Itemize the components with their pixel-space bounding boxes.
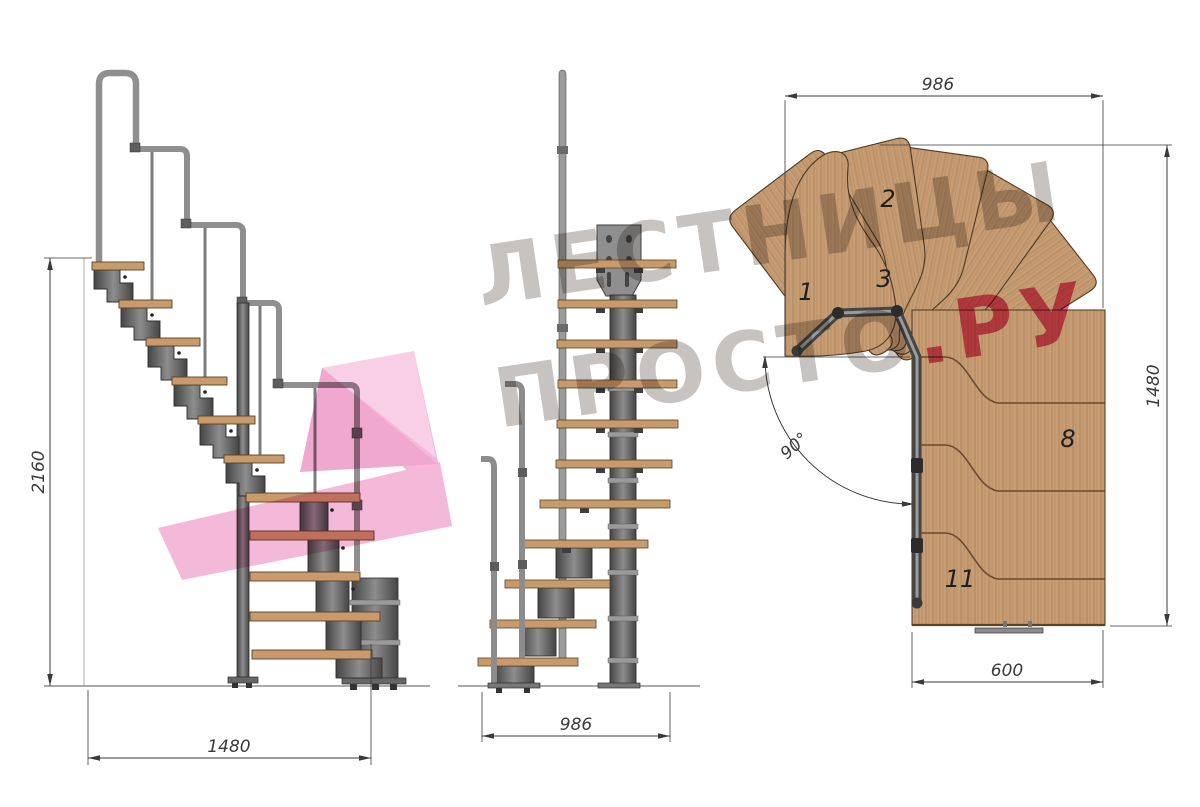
anchor-bolt [390,684,397,690]
dim-plan-angle [762,355,914,507]
dim-label-plan-bottom: 600 [991,661,1023,681]
dim-label-plan-angle: 90° [777,429,813,464]
tread-number-1: 1 [798,278,813,306]
anchor-bolt [350,684,357,690]
rail-fitting [490,562,499,571]
rail-collar [557,324,568,332]
rail-fitting [518,468,527,477]
drawing-canvas: 2160 1480 [0,0,1200,807]
rail-joint [911,538,923,553]
rail-joint [891,305,903,317]
column-base-plate [975,628,1043,633]
plan-view: 1 2 3 8 11 986 1480 600 [723,75,1172,688]
anchor-bolt [232,683,238,688]
rail-joint [832,307,844,319]
column-base-plate [598,683,640,688]
rail-end-cap [912,598,923,609]
anchor-bolt [372,684,379,690]
rail-end-cap [792,346,803,357]
dim-label-front-width: 986 [560,715,593,735]
column-joint [350,600,400,605]
post-base-plate [228,677,258,683]
base-stem [1003,621,1007,627]
handrail-left-lower [481,459,494,684]
base-stem [1028,621,1032,627]
front-elevation-view: 986 [458,70,700,742]
column-base-plate [342,678,406,684]
module-base-plate [488,683,540,688]
anchor-bolt [496,688,502,693]
side-elevation-view: 2160 1480 [29,73,430,765]
dim-side-height [44,258,92,686]
tread-number-2: 2 [880,185,895,213]
anchor-bolt [246,683,252,688]
tread-number-8: 8 [1060,425,1075,453]
tread-number-3: 3 [876,265,891,293]
rail-fitting [518,560,527,569]
staircase-technical-drawing: 2160 1480 [0,0,1200,807]
handrail-left [505,384,522,658]
handrail-loop [99,73,136,262]
treads-front [478,260,678,666]
central-column [610,295,636,685]
dim-label-plan-top: 986 [922,75,955,95]
dim-label-side-width: 1480 [207,737,250,757]
rail-joint [911,458,923,473]
dim-label-side-height: 2160 [29,450,49,493]
anchor-bolt [524,688,530,693]
tread-number-11: 11 [945,565,976,593]
rail-collar [557,146,568,154]
dim-label-plan-right: 1480 [1144,364,1164,407]
